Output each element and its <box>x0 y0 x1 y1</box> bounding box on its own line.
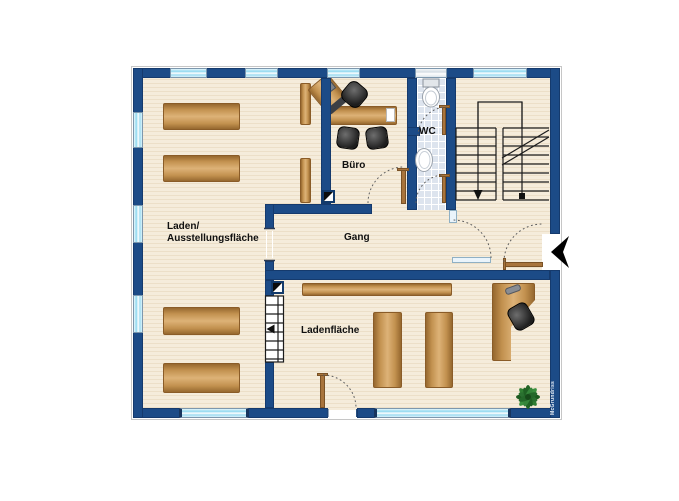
door-leaf <box>442 176 446 203</box>
room-label-laden-line2: Ausstellungsfläche <box>167 233 259 245</box>
window <box>245 68 278 78</box>
window <box>327 68 360 78</box>
display-table <box>163 103 240 130</box>
wall-wc-left <box>407 78 417 210</box>
wall-divider-lower <box>265 362 274 408</box>
room-label-gang: Gang <box>344 232 370 244</box>
guest-chair-icon <box>365 126 390 151</box>
display-table <box>163 155 240 182</box>
window <box>170 68 207 78</box>
room-label-ladenflaeche: Ladenfläche <box>301 325 359 337</box>
watermark-text: McGrundriss <box>549 363 557 415</box>
door-handle <box>317 373 328 376</box>
room-label-buero: Büro <box>342 160 365 172</box>
wall-corridor-bottom <box>265 270 550 280</box>
display-table <box>163 363 240 393</box>
guest-chair-icon <box>336 126 361 151</box>
room-label-wc: WC <box>419 127 436 137</box>
entrance-door-leaf <box>503 262 543 267</box>
wall-wc-right <box>446 78 456 210</box>
window <box>374 408 511 418</box>
wall-corridor-left-upper <box>265 204 274 229</box>
chimney-symbol <box>322 190 335 203</box>
door-handle <box>439 105 450 108</box>
glass-door-leaf <box>452 257 491 263</box>
window <box>133 295 143 333</box>
window <box>133 205 143 243</box>
wall-right-upper <box>550 68 560 234</box>
display-table <box>373 312 402 388</box>
chimney-symbol <box>271 281 284 294</box>
window-frosted <box>415 68 447 78</box>
display-table <box>425 312 453 388</box>
wall-office-left <box>321 78 331 204</box>
paper-sheet <box>386 108 395 122</box>
door-leaf <box>401 170 406 204</box>
display-table <box>163 307 240 335</box>
floor-plan-canvas: Laden/ Ausstellungsfläche Büro WC Gang L… <box>0 0 679 501</box>
entrance-opening <box>542 234 560 270</box>
door-handle <box>503 258 506 270</box>
room-label-laden: Laden/ Ausstellungsfläche <box>167 221 259 245</box>
wall-corridor-top <box>265 204 372 214</box>
room-label-laden-line1: Laden/ <box>167 221 259 233</box>
long-shelf <box>302 283 452 296</box>
door-frame <box>449 210 457 223</box>
window <box>133 112 143 148</box>
door-handle <box>439 174 450 177</box>
window <box>473 68 527 78</box>
door-leaf <box>320 375 325 408</box>
window <box>179 408 249 418</box>
door-handle <box>397 168 409 171</box>
wall-shelf <box>300 158 311 203</box>
door-leaf <box>442 107 446 135</box>
